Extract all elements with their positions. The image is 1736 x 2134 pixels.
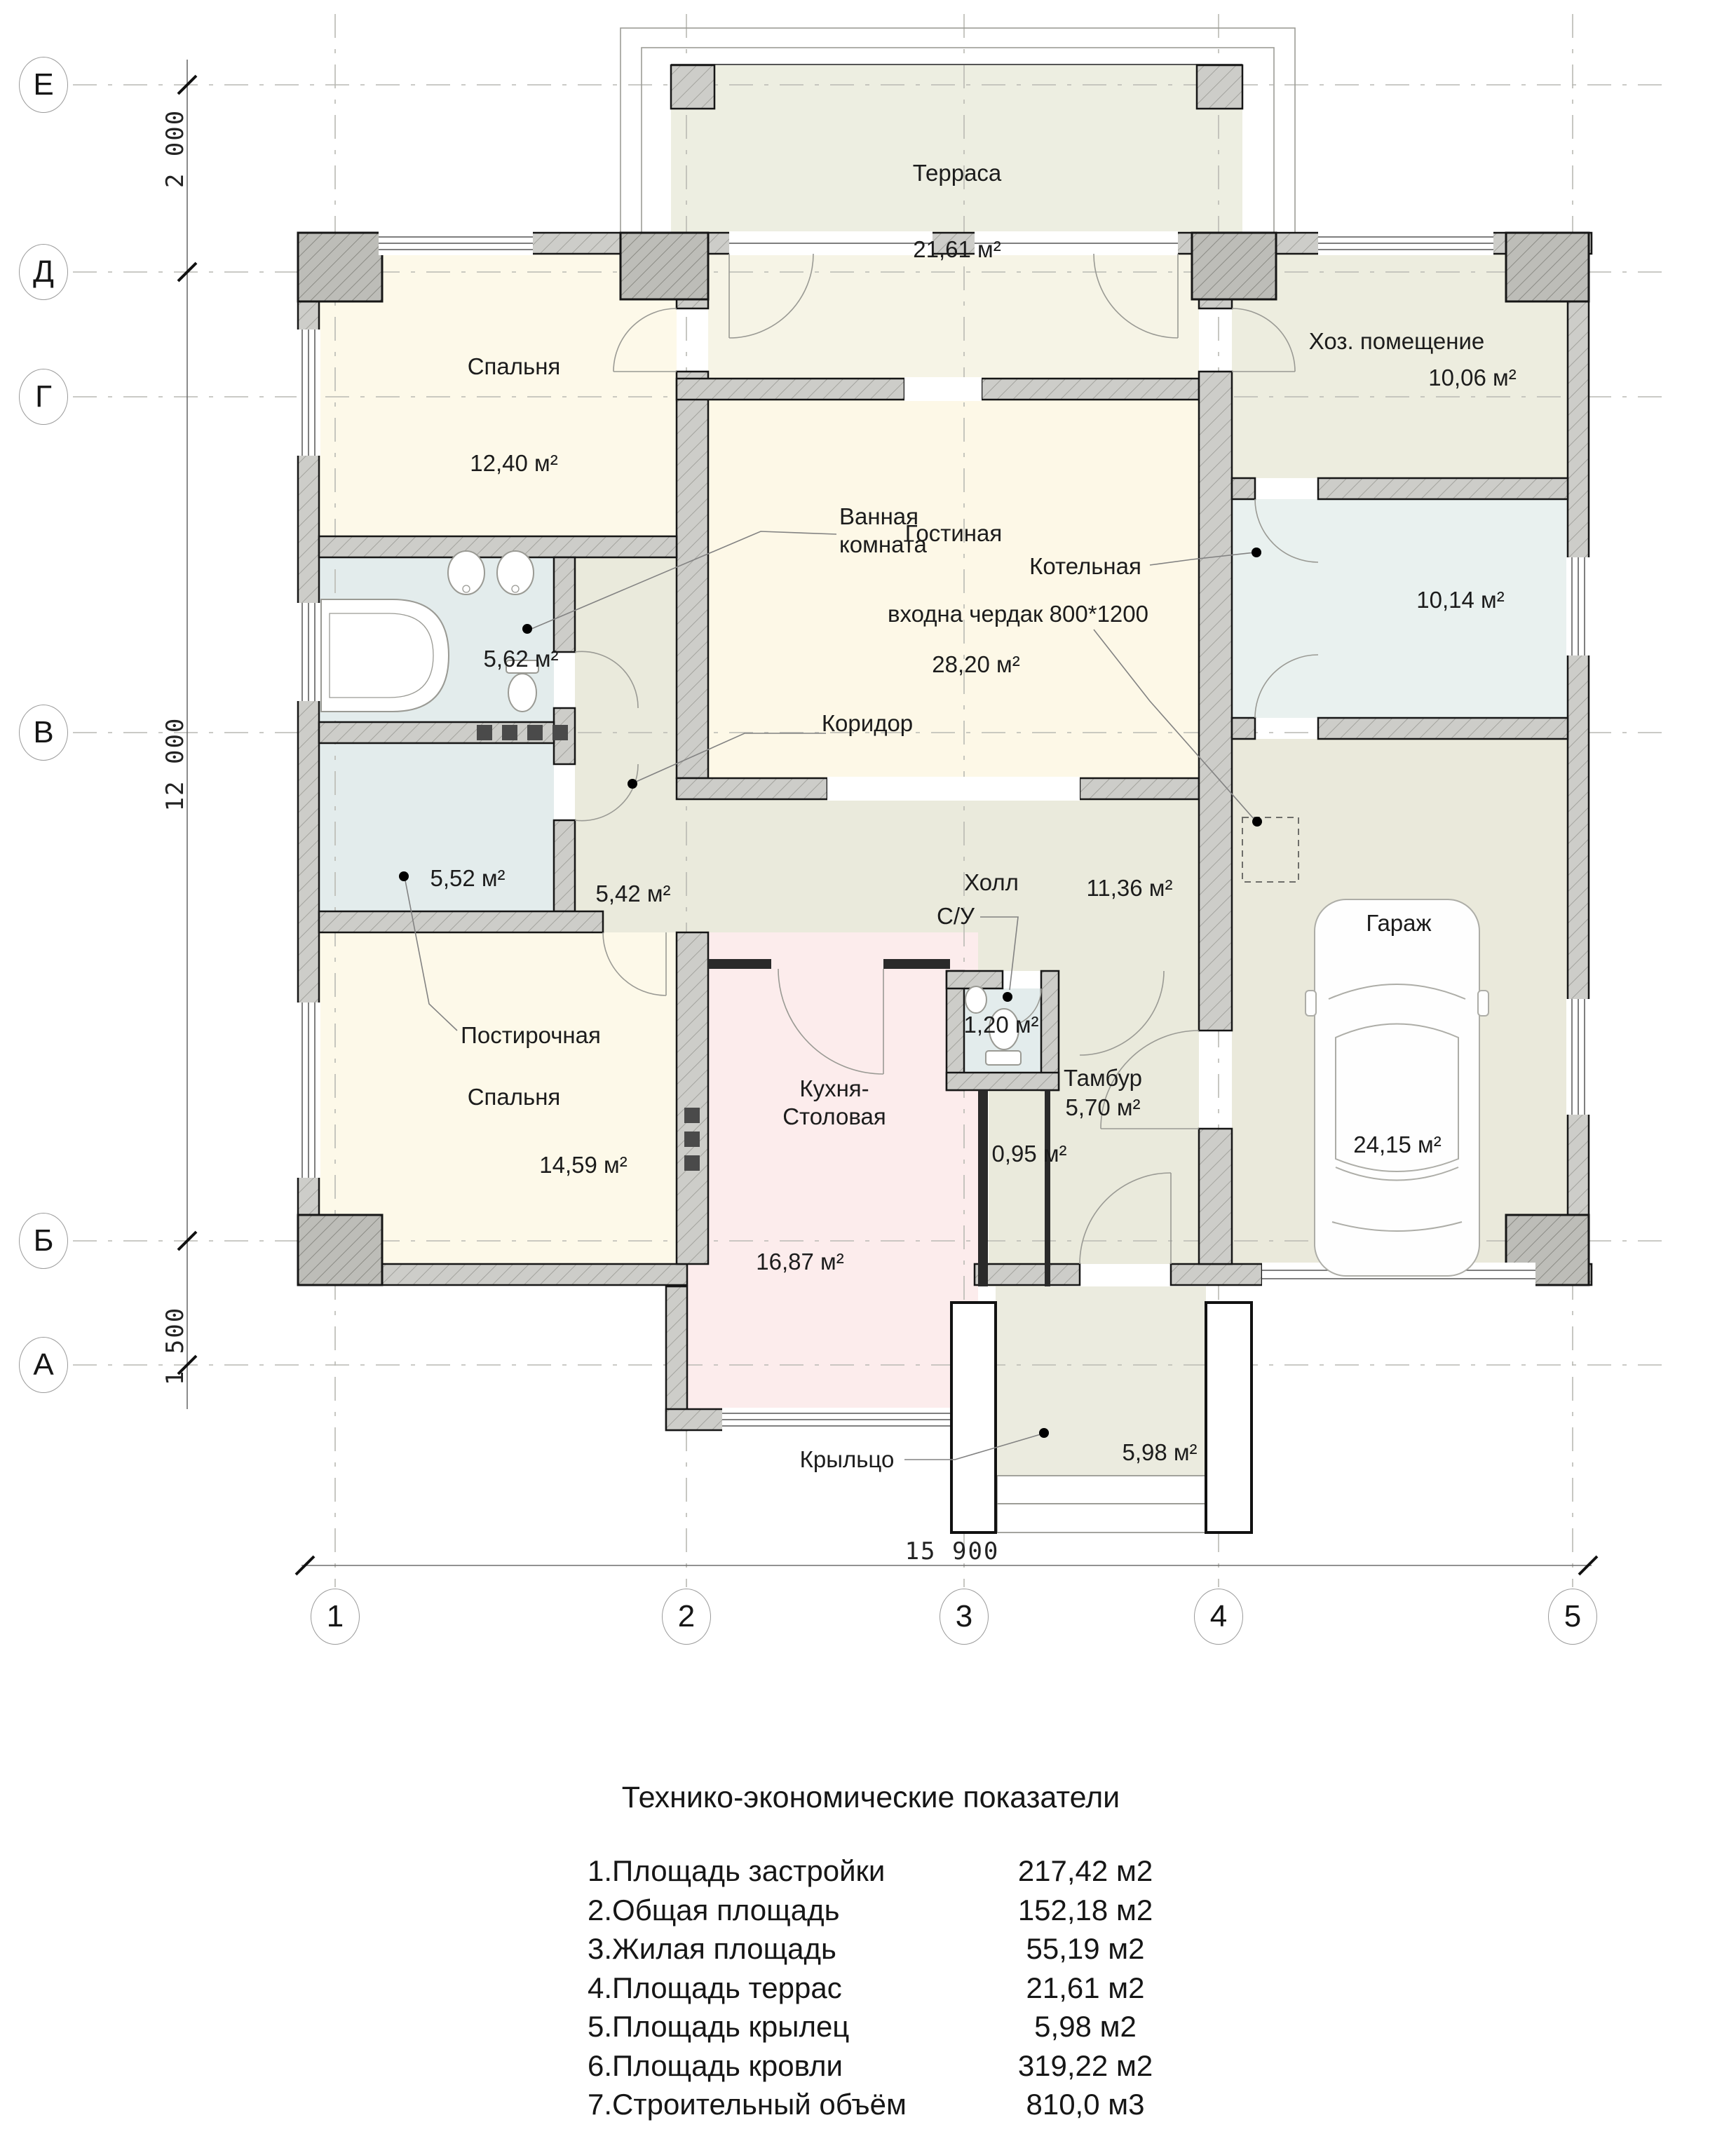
teo-row: 2.Общая площадь 152,18 м2 bbox=[588, 1891, 1191, 1930]
dim-left-12000: 12 000 bbox=[161, 717, 189, 812]
teo-row-label: 6.Площадь кровли bbox=[588, 2046, 987, 2086]
room-label-kitchen: Кухня-Столовая bbox=[771, 1075, 897, 1131]
room-area-corridor: 5,42 м² bbox=[595, 880, 670, 908]
axis-row-e: Е bbox=[19, 57, 68, 113]
room-label-bedroom1: Спальня bbox=[468, 353, 561, 381]
room-area-passage: 0,95 м² bbox=[991, 1140, 1066, 1168]
teo-row-value: 810,0 м3 bbox=[987, 2085, 1184, 2124]
room-label-hall: Холл bbox=[964, 869, 1019, 897]
room-area-bedroom1: 12,40 м² bbox=[470, 449, 557, 477]
axis-col-4: 4 bbox=[1194, 1589, 1243, 1645]
teo-row-value: 217,42 м2 bbox=[987, 1851, 1184, 1891]
floor-plan-sheet: Е Д Г В Б А 1 2 3 4 5 2 000 12 000 1 500… bbox=[0, 0, 1736, 2134]
teo-row-value: 21,61 м2 bbox=[987, 1969, 1184, 2008]
room-area-utility: 10,06 м² bbox=[1428, 364, 1516, 392]
teo-row-label: 4.Площадь террас bbox=[588, 1969, 987, 2008]
teo-table-title: Технико-экономические показатели bbox=[588, 1781, 1154, 1815]
room-area-bathroom: 5,62 м² bbox=[483, 645, 558, 673]
room-label-tambour: Тамбур bbox=[1064, 1064, 1142, 1092]
room-area-living: 28,20 м² bbox=[932, 651, 1019, 679]
room-area-kitchen: 16,87 м² bbox=[756, 1248, 843, 1276]
room-area-hall: 11,36 м² bbox=[1087, 874, 1173, 902]
axis-row-a: А bbox=[19, 1337, 68, 1393]
axis-row-b: Б bbox=[19, 1213, 68, 1269]
room-label-boiler: Котельная bbox=[1029, 552, 1141, 580]
teo-row: 1.Площадь застройки 217,42 м2 bbox=[588, 1851, 1191, 1891]
axis-row-d: Д bbox=[19, 244, 68, 300]
teo-row-label: 7.Строительный объём bbox=[588, 2085, 987, 2124]
room-label-garage: Гараж bbox=[1366, 909, 1431, 937]
room-area-wc: 1,20 м² bbox=[963, 1011, 1038, 1039]
room-area-boiler: 10,14 м² bbox=[1416, 586, 1504, 614]
teo-row-value: 319,22 м2 bbox=[987, 2046, 1184, 2086]
room-label-utility: Хоз. помещение bbox=[1309, 327, 1485, 355]
dim-left-2000: 2 000 bbox=[161, 109, 189, 188]
teo-row-value: 5,98 м2 bbox=[987, 2007, 1184, 2046]
room-area-tambour: 5,70 м² bbox=[1065, 1094, 1140, 1122]
room-area-bedroom2: 14,59 м² bbox=[539, 1151, 627, 1179]
room-label-living: Гостиная bbox=[905, 519, 1003, 548]
room-area-laundry: 5,52 м² bbox=[430, 864, 505, 892]
room-label-bedroom2: Спальня bbox=[468, 1083, 561, 1111]
axis-row-v: В bbox=[19, 705, 68, 761]
teo-row-value: 152,18 м2 bbox=[987, 1891, 1184, 1930]
teo-row: 4.Площадь террас 21,61 м2 bbox=[588, 1969, 1191, 2008]
teo-row: 5.Площадь крылец 5,98 м2 bbox=[588, 2007, 1191, 2046]
teo-row-value: 55,19 м2 bbox=[987, 1929, 1184, 1969]
teo-row-label: 3.Жилая площадь bbox=[588, 1929, 987, 1969]
axis-col-2: 2 bbox=[662, 1589, 711, 1645]
teo-table: 1.Площадь застройки 217,42 м2 2.Общая пл… bbox=[588, 1851, 1191, 2124]
note-attic-hatch: входна чердак 800*1200 bbox=[888, 600, 1148, 628]
axis-col-3: 3 bbox=[940, 1589, 989, 1645]
teo-row-label: 1.Площадь застройки bbox=[588, 1851, 987, 1891]
dim-bottom-15900: 15 900 bbox=[905, 1537, 1000, 1565]
teo-row: 7.Строительный объём 810,0 м3 bbox=[588, 2085, 1191, 2124]
room-label-terrace: Терраса bbox=[913, 159, 1002, 187]
room-area-garage: 24,15 м² bbox=[1353, 1131, 1441, 1159]
room-label-corridor: Коридор bbox=[822, 709, 913, 738]
teo-row-label: 5.Площадь крылец bbox=[588, 2007, 987, 2046]
room-label-wc: С/У bbox=[937, 902, 975, 930]
room-label-porch: Крыльцо bbox=[800, 1446, 895, 1474]
axis-col-1: 1 bbox=[311, 1589, 360, 1645]
teo-row: 3.Жилая площадь 55,19 м2 bbox=[588, 1929, 1191, 1969]
room-label-laundry: Постирочная bbox=[461, 1021, 601, 1049]
dim-left-1500: 1 500 bbox=[161, 1307, 189, 1385]
room-area-terrace: 21,61 м² bbox=[913, 236, 1001, 264]
teo-row-label: 2.Общая площадь bbox=[588, 1891, 987, 1930]
axis-col-5: 5 bbox=[1548, 1589, 1597, 1645]
teo-row: 6.Площадь кровли 319,22 м2 bbox=[588, 2046, 1191, 2086]
room-area-porch: 5,98 м² bbox=[1122, 1439, 1197, 1467]
axis-row-g: Г bbox=[19, 369, 68, 425]
